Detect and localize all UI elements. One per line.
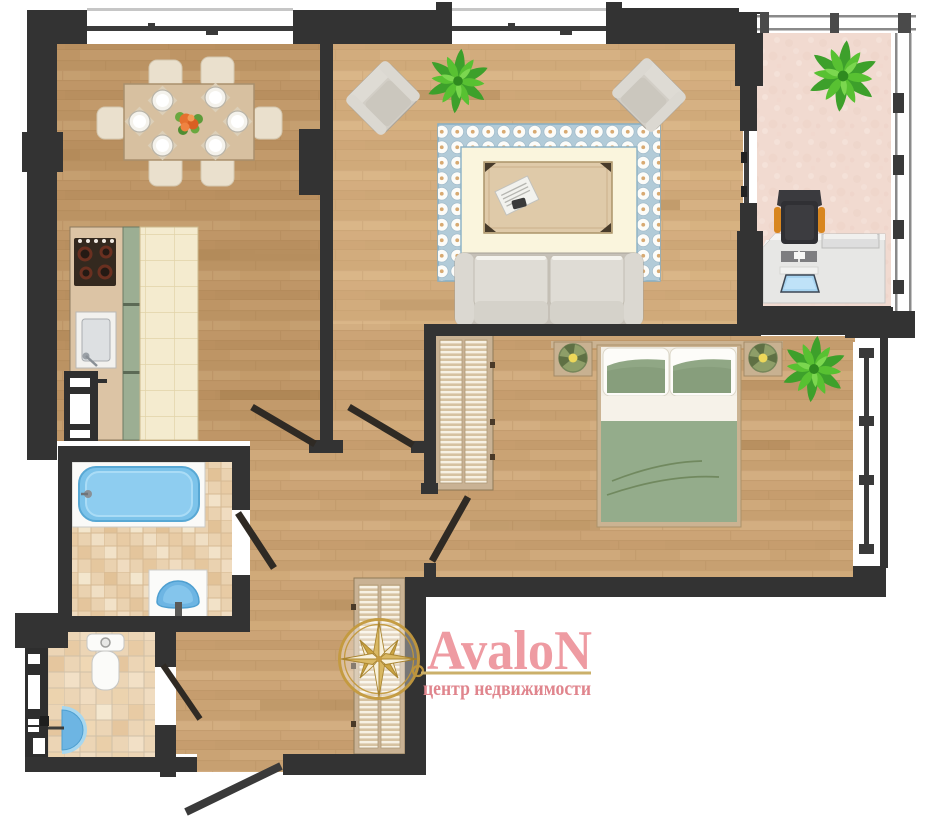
svg-text:центр недвижимости: центр недвижимости bbox=[423, 676, 591, 700]
